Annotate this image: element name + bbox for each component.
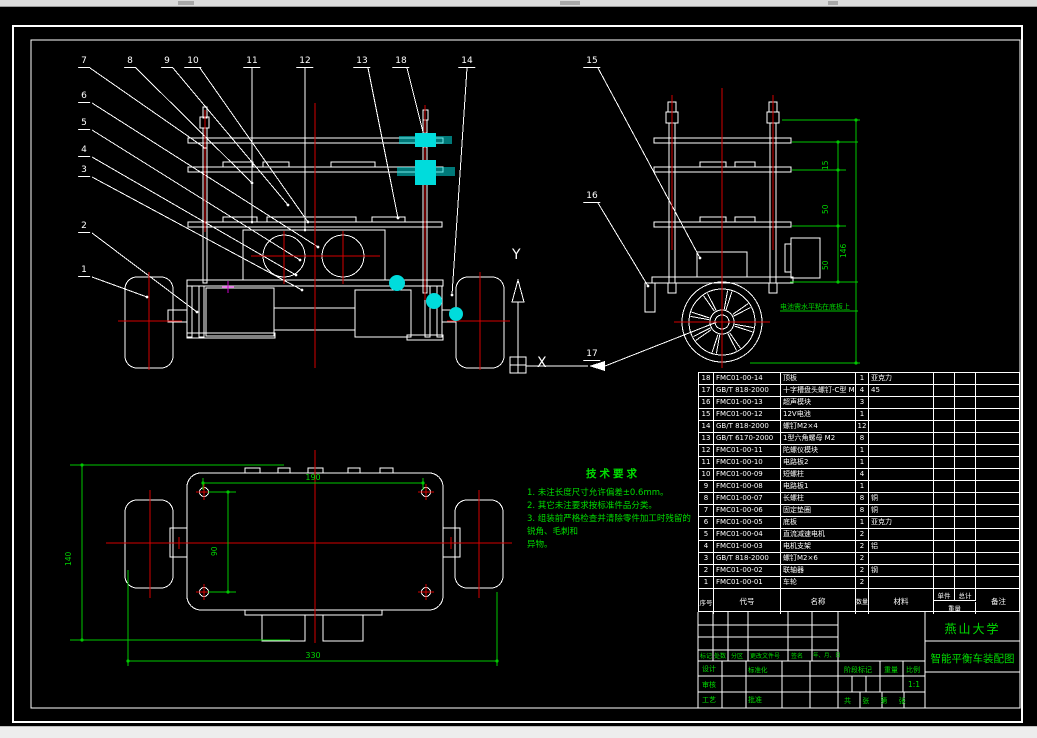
bom-cell-total bbox=[955, 553, 976, 564]
bom-cell-name: 直流减速电机 bbox=[781, 529, 856, 540]
bom-rows: 18FMC01-00-14顶板1亚克力17GB/T 818-2000十字槽盘头螺… bbox=[699, 373, 1019, 589]
bom-row: 18FMC01-00-14顶板1亚克力 bbox=[699, 373, 1019, 385]
bom-cell-code: FMC01-00-11 bbox=[714, 445, 781, 456]
bom-cell-name: 电机支架 bbox=[781, 541, 856, 552]
tb-process: 工艺 bbox=[702, 695, 716, 705]
bom-cell-total bbox=[955, 433, 976, 444]
bom-cell-qty: 3 bbox=[856, 397, 869, 408]
bom-cell-unit bbox=[934, 541, 955, 552]
bom-cell-no: 8 bbox=[699, 493, 714, 504]
bom-cell-qty: 12 bbox=[856, 421, 869, 432]
dim-overall-height: 146 bbox=[840, 244, 848, 258]
balloon-7: 7 bbox=[78, 56, 90, 68]
bom-cell-material bbox=[869, 469, 934, 480]
balloon-8: 8 bbox=[124, 56, 136, 68]
tb-zone: 分区 bbox=[731, 651, 743, 660]
balloon-6: 6 bbox=[78, 91, 90, 103]
tech-req-line: 1. 未注长度尺寸允许偏差±0.6mm。 bbox=[527, 487, 699, 500]
dim-body-length: 140 bbox=[65, 552, 73, 566]
bom-cell-name: 电路板1 bbox=[781, 481, 856, 492]
bom-cell-name: 联轴器 bbox=[781, 565, 856, 576]
bom-cell-no: 6 bbox=[699, 517, 714, 528]
bom-cell-total bbox=[955, 577, 976, 588]
bom-cell-name: 电路板2 bbox=[781, 457, 856, 468]
bom-cell-name: 螺钉M2×6 bbox=[781, 553, 856, 564]
bom-row: 1FMC01-00-01车轮2 bbox=[699, 577, 1019, 589]
balloon-16: 16 bbox=[583, 191, 600, 203]
bom-cell-remark bbox=[976, 541, 1020, 552]
bom-row: 14GB/T 818-2000螺钉M2×412 bbox=[699, 421, 1019, 433]
bom-cell-qty: 2 bbox=[856, 529, 869, 540]
balloon-9: 9 bbox=[161, 56, 173, 68]
bom-cell-material bbox=[869, 433, 934, 444]
tb-drawing-title: 智能平衡车装配图 bbox=[925, 651, 1020, 666]
balloon-17-arrowhead bbox=[589, 361, 605, 371]
bom-header-remark: 备注 bbox=[976, 589, 1021, 614]
bom-cell-qty: 8 bbox=[856, 433, 869, 444]
bom-cell-unit bbox=[934, 397, 955, 408]
bom-cell-no: 11 bbox=[699, 457, 714, 468]
side-view bbox=[645, 102, 820, 362]
bom-cell-name: 陀螺仪模块 bbox=[781, 445, 856, 456]
bom-cell-unit bbox=[934, 409, 955, 420]
bom-cell-name: 固定垫圈 bbox=[781, 505, 856, 516]
tb-stage-mark: 阶段标记 bbox=[844, 665, 872, 675]
dim-hole-vertical: 90 bbox=[211, 546, 219, 556]
dim-gap-mid: 50 bbox=[822, 204, 830, 214]
bom-cell-code: FMC01-00-03 bbox=[714, 541, 781, 552]
bom-cell-code: FMC01-00-05 bbox=[714, 517, 781, 528]
bom-header-code: 代号 bbox=[714, 589, 781, 614]
bom-cell-remark bbox=[976, 505, 1020, 516]
bom-cell-qty: 1 bbox=[856, 517, 869, 528]
bom-header-no: 序号 bbox=[699, 589, 714, 614]
bom-cell-no: 7 bbox=[699, 505, 714, 516]
bom-cell-remark bbox=[976, 445, 1020, 456]
bom-row: 3GB/T 818-2000螺钉M2×62 bbox=[699, 553, 1019, 565]
tb-mark: 标记 bbox=[700, 651, 712, 660]
bom-cell-code: FMC01-00-07 bbox=[714, 493, 781, 504]
bom-cell-material bbox=[869, 577, 934, 588]
bom-cell-total bbox=[955, 517, 976, 528]
balloon-11: 11 bbox=[243, 56, 260, 68]
bom-cell-remark bbox=[976, 481, 1020, 492]
bom-row: 2FMC01-00-02联轴器2钢 bbox=[699, 565, 1019, 577]
bom-cell-qty: 1 bbox=[856, 481, 869, 492]
tb-review: 审核 bbox=[702, 680, 716, 690]
bom-header-total: 总计 bbox=[955, 589, 976, 601]
bom-cell-unit bbox=[934, 445, 955, 456]
bom-cell-unit bbox=[934, 385, 955, 396]
bom-cell-no: 5 bbox=[699, 529, 714, 540]
balloon-18: 18 bbox=[392, 56, 409, 68]
dim-overall-width: 330 bbox=[305, 652, 320, 660]
bom-cell-no: 17 bbox=[699, 385, 714, 396]
bom-cell-total bbox=[955, 409, 976, 420]
side-view-note: 电池需水平粘在底板上 bbox=[780, 302, 850, 312]
bom-cell-unit bbox=[934, 493, 955, 504]
bom-cell-remark bbox=[976, 457, 1020, 468]
bom-cell-code: GB/T 818-2000 bbox=[714, 421, 781, 432]
bom-cell-unit bbox=[934, 529, 955, 540]
bom-cell-material bbox=[869, 397, 934, 408]
tb-weight: 重量 bbox=[884, 665, 898, 675]
bom-cell-no: 3 bbox=[699, 553, 714, 564]
balloon-14: 14 bbox=[458, 56, 475, 68]
bom-cell-material bbox=[869, 481, 934, 492]
bom-cell-total bbox=[955, 481, 976, 492]
bom-cell-no: 14 bbox=[699, 421, 714, 432]
tb-design: 设计 bbox=[702, 664, 716, 674]
bom-cell-material: 铜 bbox=[869, 505, 934, 516]
bom-cell-name: 短螺柱 bbox=[781, 469, 856, 480]
balloon-12: 12 bbox=[296, 56, 313, 68]
balloon-10: 10 bbox=[184, 56, 201, 68]
bom-cell-unit bbox=[934, 433, 955, 444]
bom-cell-qty: 1 bbox=[856, 445, 869, 456]
bom-header-material: 材料 bbox=[869, 589, 934, 614]
bom-cell-remark bbox=[976, 577, 1020, 588]
bom-cell-qty: 1 bbox=[856, 409, 869, 420]
bom-cell-remark bbox=[976, 397, 1020, 408]
tb-standardization: 标准化 bbox=[748, 664, 768, 674]
bom-cell-name: 超声模块 bbox=[781, 397, 856, 408]
dim-gap-bottom: 50 bbox=[822, 260, 830, 270]
bom-cell-no: 1 bbox=[699, 577, 714, 588]
bom-cell-no: 18 bbox=[699, 373, 714, 384]
bom-cell-name: 螺钉M2×4 bbox=[781, 421, 856, 432]
balloon-4: 4 bbox=[78, 145, 90, 157]
bom-cell-remark bbox=[976, 529, 1020, 540]
bom-row: 4FMC01-00-03电机支架2铝 bbox=[699, 541, 1019, 553]
dim-gap-top: 15 bbox=[822, 160, 830, 170]
bom-cell-code: FMC01-00-01 bbox=[714, 577, 781, 588]
magenta-marks bbox=[222, 281, 234, 293]
tb-count: 处数 bbox=[714, 651, 726, 660]
bom-cell-total bbox=[955, 565, 976, 576]
bom-cell-code: FMC01-00-12 bbox=[714, 409, 781, 420]
bom-row: 17GB/T 818-2000十字槽盘头螺钉-C型 M3×4445 bbox=[699, 385, 1019, 397]
bom-cell-qty: 2 bbox=[856, 553, 869, 564]
balloon-13: 13 bbox=[353, 56, 370, 68]
bom-cell-name: 十字槽盘头螺钉-C型 M3×4 bbox=[781, 385, 856, 396]
bom-cell-remark bbox=[976, 373, 1020, 384]
bom-header-unit: 单件 bbox=[934, 589, 955, 601]
bom-cell-remark bbox=[976, 409, 1020, 420]
bom-cell-name: 底板 bbox=[781, 517, 856, 528]
bom-header-weight: 重量 bbox=[934, 602, 976, 614]
bom-row: 15FMC01-00-1212V电池1 bbox=[699, 409, 1019, 421]
bom-cell-remark bbox=[976, 565, 1020, 576]
tech-req-title: 技术要求 bbox=[527, 466, 699, 481]
bom-cell-material: 铜 bbox=[869, 493, 934, 504]
bom-table: 18FMC01-00-14顶板1亚克力17GB/T 818-2000十字槽盘头螺… bbox=[698, 372, 1020, 612]
bom-cell-name: 长螺柱 bbox=[781, 493, 856, 504]
technical-requirements: 技术要求 1. 未注长度尺寸允许偏差±0.6mm。 2. 其它未注要求按标准件品… bbox=[527, 466, 699, 552]
balloon-5: 5 bbox=[78, 118, 90, 130]
bom-cell-material bbox=[869, 457, 934, 468]
bom-cell-name: 1型六角螺母 M2 bbox=[781, 433, 856, 444]
dim-hole-span: 190 bbox=[305, 474, 320, 482]
bom-cell-unit bbox=[934, 577, 955, 588]
bom-cell-no: 4 bbox=[699, 541, 714, 552]
bom-cell-material: 45 bbox=[869, 385, 934, 396]
bom-cell-remark bbox=[976, 517, 1020, 528]
balloon-1: 1 bbox=[78, 265, 90, 277]
balloon-15: 15 bbox=[583, 56, 600, 68]
bom-cell-material bbox=[869, 421, 934, 432]
bom-cell-unit bbox=[934, 457, 955, 468]
bom-cell-no: 13 bbox=[699, 433, 714, 444]
bom-row: 12FMC01-00-11陀螺仪模块1 bbox=[699, 445, 1019, 457]
tb-university: 燕山大学 bbox=[925, 620, 1020, 637]
bom-cell-qty: 2 bbox=[856, 577, 869, 588]
bom-cell-qty: 2 bbox=[856, 565, 869, 576]
bom-row: 6FMC01-00-05底板1亚克力 bbox=[699, 517, 1019, 529]
bom-cell-remark bbox=[976, 469, 1020, 480]
bom-cell-qty: 4 bbox=[856, 385, 869, 396]
bom-row: 10FMC01-00-09短螺柱4 bbox=[699, 469, 1019, 481]
x-axis-label: X bbox=[537, 356, 547, 370]
bom-cell-material bbox=[869, 445, 934, 456]
bom-cell-unit bbox=[934, 553, 955, 564]
bom-cell-total bbox=[955, 469, 976, 480]
bom-cell-total bbox=[955, 373, 976, 384]
bom-row: 7FMC01-00-06固定垫圈8铜 bbox=[699, 505, 1019, 517]
bom-cell-material bbox=[869, 529, 934, 540]
bom-cell-remark bbox=[976, 421, 1020, 432]
bom-cell-material: 亚克力 bbox=[869, 373, 934, 384]
bom-cell-no: 2 bbox=[699, 565, 714, 576]
tb-change-doc: 更改文件号 bbox=[750, 651, 780, 660]
bom-cell-unit bbox=[934, 517, 955, 528]
bom-cell-unit bbox=[934, 469, 955, 480]
tb-scale-value: 1:1 bbox=[908, 680, 920, 689]
bom-cell-material: 铝 bbox=[869, 541, 934, 552]
bom-cell-qty: 2 bbox=[856, 541, 869, 552]
bom-cell-qty: 8 bbox=[856, 493, 869, 504]
tb-scale: 比例 bbox=[906, 665, 920, 675]
bom-cell-unit bbox=[934, 421, 955, 432]
bom-cell-no: 15 bbox=[699, 409, 714, 420]
bom-cell-code: GB/T 818-2000 bbox=[714, 553, 781, 564]
bom-cell-unit bbox=[934, 373, 955, 384]
bom-cell-total bbox=[955, 397, 976, 408]
drawing-canvas bbox=[0, 0, 1037, 738]
bom-cell-total bbox=[955, 505, 976, 516]
bom-cell-material: 亚克力 bbox=[869, 517, 934, 528]
bom-cell-code: FMC01-00-04 bbox=[714, 529, 781, 540]
bom-header-name: 名称 bbox=[781, 589, 856, 614]
bom-cell-total bbox=[955, 493, 976, 504]
bom-cell-unit bbox=[934, 565, 955, 576]
bom-cell-remark bbox=[976, 493, 1020, 504]
bom-row: 11FMC01-00-10电路板21 bbox=[699, 457, 1019, 469]
bom-cell-code: FMC01-00-13 bbox=[714, 397, 781, 408]
top-view bbox=[125, 468, 503, 641]
bom-cell-total bbox=[955, 529, 976, 540]
bom-cell-remark bbox=[976, 385, 1020, 396]
bom-cell-qty: 4 bbox=[856, 469, 869, 480]
tb-signature: 签名 bbox=[791, 651, 803, 660]
bom-cell-qty: 8 bbox=[856, 505, 869, 516]
bom-cell-total bbox=[955, 421, 976, 432]
bom-cell-code: FMC01-00-02 bbox=[714, 565, 781, 576]
bom-cell-total bbox=[955, 445, 976, 456]
tb-approve: 批准 bbox=[748, 695, 762, 705]
bom-row: 13GB/T 6170-20001型六角螺母 M28 bbox=[699, 433, 1019, 445]
bom-row: 16FMC01-00-13超声模块3 bbox=[699, 397, 1019, 409]
bom-header-qty: 数量 bbox=[856, 589, 869, 614]
bom-cell-material bbox=[869, 553, 934, 564]
bom-cell-material: 钢 bbox=[869, 565, 934, 576]
bom-cell-no: 12 bbox=[699, 445, 714, 456]
bom-cell-code: FMC01-00-08 bbox=[714, 481, 781, 492]
bom-row: 8FMC01-00-07长螺柱8铜 bbox=[699, 493, 1019, 505]
bom-cell-qty: 1 bbox=[856, 373, 869, 384]
bom-cell-code: FMC01-00-09 bbox=[714, 469, 781, 480]
bom-row: 9FMC01-00-08电路板11 bbox=[699, 481, 1019, 493]
balloon-3: 3 bbox=[78, 165, 90, 177]
bom-cell-no: 16 bbox=[699, 397, 714, 408]
bom-header-row: 序号 代号 名称 数量 材料 单件 总计 重量 备注 bbox=[699, 589, 1019, 611]
bom-cell-material bbox=[869, 409, 934, 420]
tech-req-line: 异物。 bbox=[527, 539, 699, 552]
cad-drawing-screen: 7 8 9 10 11 12 13 18 14 6 5 4 3 2 1 15 1… bbox=[0, 0, 1037, 738]
balloon-17: 17 bbox=[583, 349, 600, 361]
bom-cell-name: 车轮 bbox=[781, 577, 856, 588]
bom-cell-name: 顶板 bbox=[781, 373, 856, 384]
bom-cell-total bbox=[955, 457, 976, 468]
bom-cell-remark bbox=[976, 553, 1020, 564]
tech-req-line: 3. 组装前严格检查并清除零件加工时残留的锐角、毛刺和 bbox=[527, 513, 699, 539]
bom-cell-unit bbox=[934, 481, 955, 492]
tb-date: 年、月、日 bbox=[813, 651, 841, 659]
y-axis-label: Y bbox=[512, 248, 521, 262]
bom-cell-code: GB/T 818-2000 bbox=[714, 385, 781, 396]
bom-cell-total bbox=[955, 385, 976, 396]
bom-cell-remark bbox=[976, 433, 1020, 444]
bom-cell-no: 9 bbox=[699, 481, 714, 492]
balloon-2: 2 bbox=[78, 221, 90, 233]
bom-cell-code: FMC01-00-06 bbox=[714, 505, 781, 516]
ucs-icon bbox=[510, 280, 588, 373]
bom-row: 5FMC01-00-04直流减速电机2 bbox=[699, 529, 1019, 541]
bom-cell-code: FMC01-00-10 bbox=[714, 457, 781, 468]
bom-cell-no: 10 bbox=[699, 469, 714, 480]
bom-cell-name: 12V电池 bbox=[781, 409, 856, 420]
bom-cell-qty: 1 bbox=[856, 457, 869, 468]
bom-cell-total bbox=[955, 541, 976, 552]
tech-req-line: 2. 其它未注要求按标准件品分类。 bbox=[527, 500, 699, 513]
tb-sheet-info: 共 张 第 张 bbox=[844, 696, 906, 706]
bom-cell-unit bbox=[934, 505, 955, 516]
bom-cell-code: FMC01-00-14 bbox=[714, 373, 781, 384]
bom-cell-code: GB/T 6170-2000 bbox=[714, 433, 781, 444]
